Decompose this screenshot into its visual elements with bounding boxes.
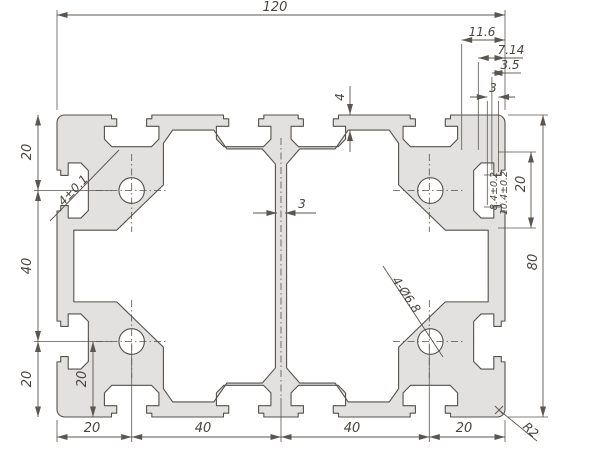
dim-bottom-40b: 40 bbox=[344, 421, 361, 436]
dim-slot-cavity-20: 20 bbox=[514, 176, 529, 193]
dim-left-40: 40 bbox=[20, 258, 35, 275]
dim-overall-width: 120 bbox=[263, 0, 288, 15]
dim-bottom-20a: 20 bbox=[84, 421, 101, 436]
dim-stack-3: 3 bbox=[489, 81, 497, 95]
dim-holes-callout: 4-Ø6.8 bbox=[389, 274, 423, 316]
dim-wall-thickness: 4 bbox=[333, 93, 347, 101]
dim-left-20-top: 20 bbox=[20, 144, 35, 161]
dim-overall-height: 80 bbox=[526, 254, 541, 271]
dim-stack-7-14: 7.14 bbox=[498, 43, 525, 57]
dim-left-20-bottom: 20 bbox=[20, 371, 35, 388]
dim-web-thickness: 3 bbox=[298, 197, 306, 211]
dim-stack-3-5: 3.5 bbox=[500, 58, 519, 72]
dim-inner-20: 20 bbox=[75, 371, 90, 388]
dim-slot-depth-10-4: 10.4±0.2 bbox=[499, 171, 510, 215]
dim-stack-11-6: 11.6 bbox=[469, 25, 496, 39]
dim-bottom-20b: 20 bbox=[456, 421, 473, 436]
dim-bottom-40a: 40 bbox=[195, 421, 212, 436]
dim-corner-radius: R2 bbox=[520, 419, 541, 440]
technical-drawing-canvas: 120 11.6 7.14 3.5 3 20 40 20 20 80 20 8.… bbox=[0, 0, 600, 450]
drawing-svg: 120 11.6 7.14 3.5 3 20 40 20 20 80 20 8.… bbox=[0, 0, 600, 450]
